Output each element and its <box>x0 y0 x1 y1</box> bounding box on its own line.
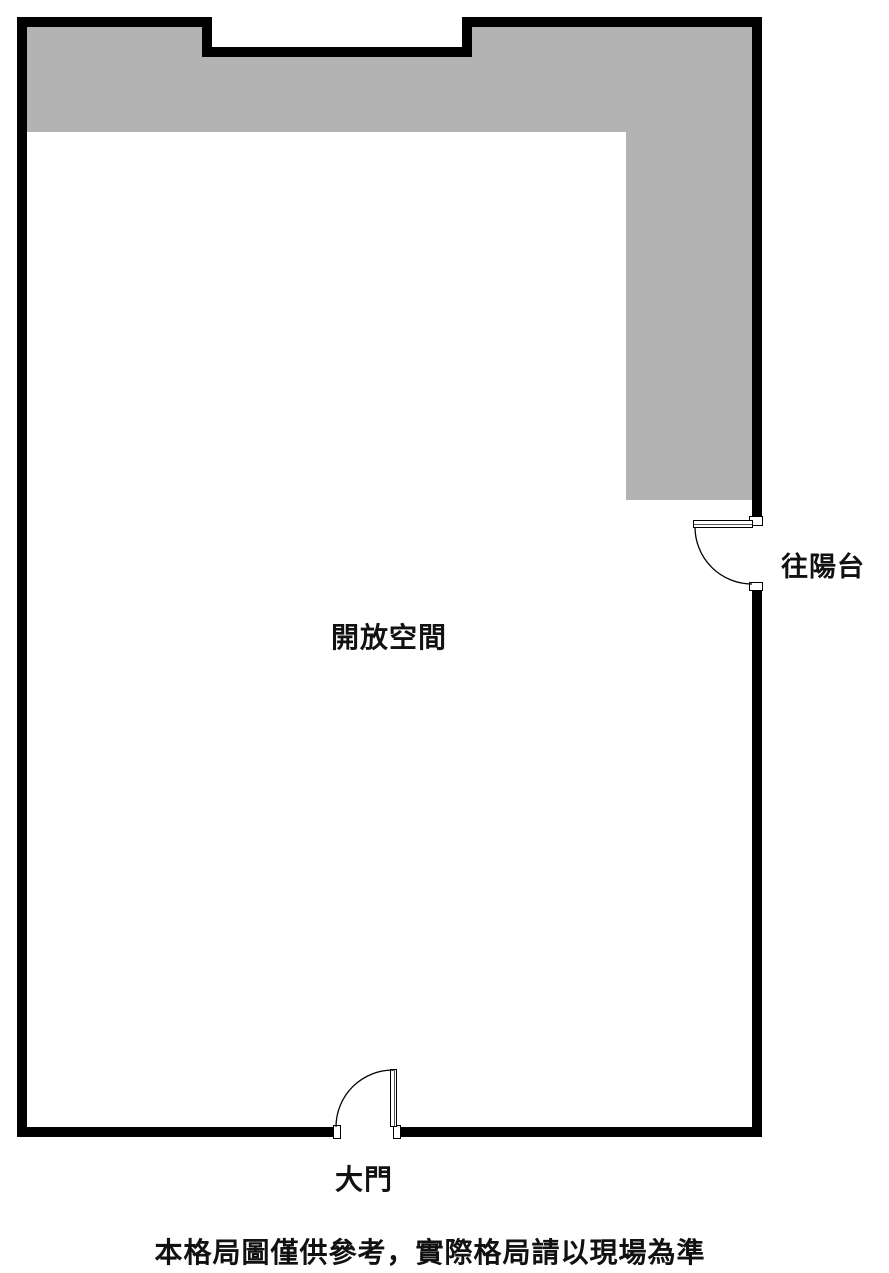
wall-right-lower <box>752 584 762 1137</box>
balcony-door-swing-arc <box>695 527 754 586</box>
shaded-area-top-right <box>472 27 752 132</box>
disclaimer-text: 本格局圖僅供參考，實際格局請以現場為準 <box>0 1231 860 1271</box>
wall-bottom-right-segment <box>400 1127 762 1137</box>
main-door-swing-arc <box>336 1070 394 1128</box>
wall-left <box>17 17 27 1137</box>
wall-right-upper <box>752 17 762 519</box>
shaded-area-top-middle <box>202 57 472 132</box>
shaded-area-right-arm <box>626 132 752 500</box>
main-door-jamb-right <box>393 1125 401 1139</box>
balcony-door-label: 往陽台 <box>781 545 865 584</box>
shaded-area-top-left <box>27 27 212 132</box>
floor-plan: 開放空間 往陽台 大門 本格局圖僅供參考，實際格局請以現場為準 <box>0 0 889 1273</box>
wall-top-right-segment <box>462 17 762 27</box>
wall-bottom-left-segment <box>17 1127 335 1137</box>
open-space-label: 開放空間 <box>331 616 447 656</box>
main-door-label: 大門 <box>335 1158 393 1198</box>
wall-top-left-segment <box>17 17 212 27</box>
wall-top-recessed-segment <box>202 47 472 57</box>
